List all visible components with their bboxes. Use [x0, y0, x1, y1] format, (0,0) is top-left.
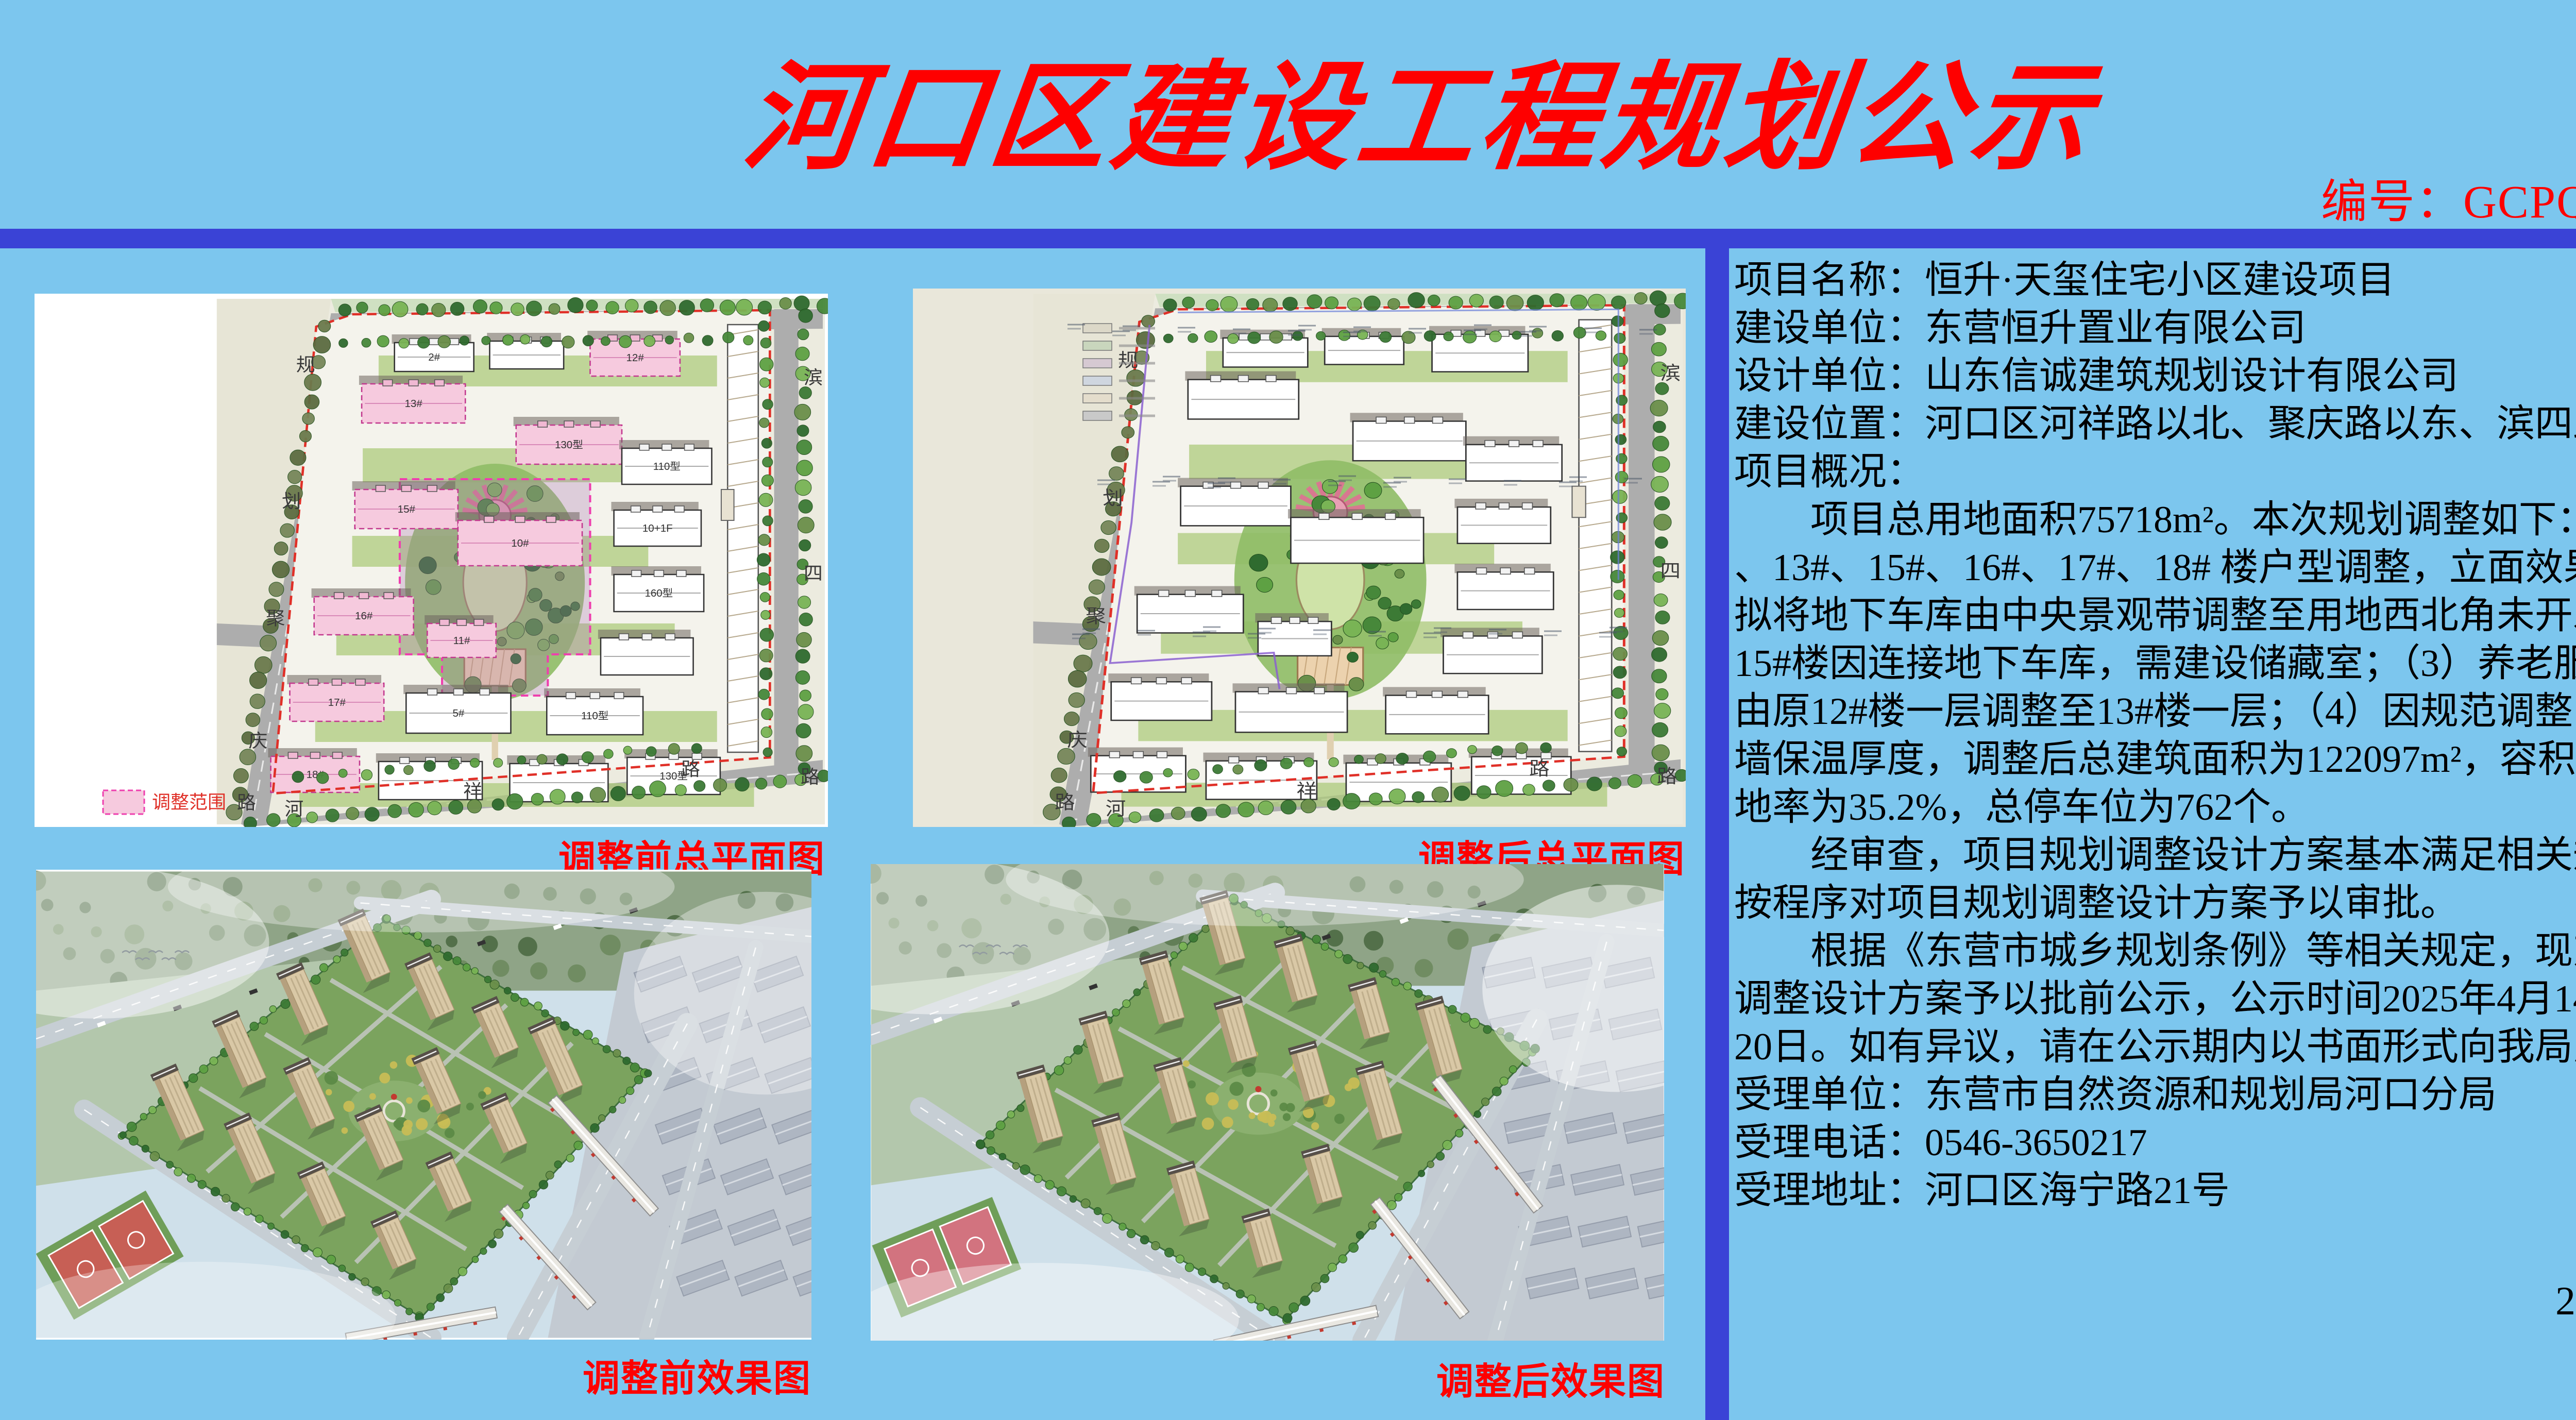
- horizontal-divider: [0, 229, 2576, 248]
- info-line: 调整设计方案予以批前公示，公示时间2025年4月14日至2025年4月: [1734, 975, 2576, 1023]
- building-label: 110型: [581, 710, 608, 722]
- caption-rendering-after: 调整后效果图: [1436, 1351, 1665, 1405]
- info-line: 15#楼因连接地下车库，需建设储藏室；（3）养老服务设施用房: [1734, 640, 2576, 688]
- road-label: 河: [284, 799, 303, 819]
- info-line: 按程序对项目规划调整设计方案予以审批。: [1734, 880, 2576, 927]
- road-label: 滨: [1660, 363, 1681, 384]
- road-label: 聚: [1086, 606, 1106, 627]
- rendering-after-image: [871, 864, 1664, 1341]
- building-label: 160型: [645, 587, 673, 599]
- rendering-before-drawing: [36, 870, 811, 1340]
- building-label: 10+1F: [642, 523, 673, 534]
- site-plan-after-image: 规划聚庆路滨四路河祥路: [913, 289, 1686, 827]
- planning-notice-poster: 河口区建设工程规划公示 编号：GCPQ2025015 12#2#13#130型1…: [0, 0, 2576, 1420]
- info-line: 20日。如有异议，请在公示期内以书面形式向我局反馈。: [1734, 1023, 2576, 1071]
- rendering-before-image: [36, 870, 811, 1340]
- info-line: 墙保温厚度，调整后总建筑面积为122097m²，容积率为1.47，绿: [1734, 736, 2576, 784]
- building-label: 13#: [405, 398, 423, 410]
- road-label: 河: [1106, 799, 1126, 819]
- info-line: 受理电话：0546-3650217: [1734, 1119, 2576, 1167]
- info-line: 根据《东营市城乡规划条例》等相关规定，现对该项目规划: [1734, 927, 2576, 975]
- building-label: 12#: [626, 352, 645, 364]
- road-label: 庆: [248, 731, 267, 751]
- project-info-text: 项目名称：恒升·天玺住宅小区建设项目建设单位：东营恒升置业有限公司设计单位：山东…: [1734, 257, 2576, 1215]
- building-label: 15#: [398, 504, 416, 515]
- road-label: 划: [282, 491, 301, 511]
- building-label: 17#: [328, 697, 346, 708]
- plan-graphics: [1033, 291, 1686, 827]
- road-label: 庆: [1067, 730, 1087, 751]
- info-line: 建设单位：东营恒升置业有限公司: [1734, 305, 2576, 352]
- building-label: 10#: [511, 538, 529, 549]
- road-label: 路: [681, 759, 700, 779]
- info-line: 受理单位：东营市自然资源和规划局河口分局: [1734, 1071, 2576, 1119]
- rendering-after-drawing: [871, 864, 1664, 1341]
- plan-legend: 调整范围: [103, 790, 226, 814]
- plan-graphics: 12#2#13#130型110型15#10#10+1F160型16#11#17#…: [217, 296, 828, 827]
- plan-legend-label: 调整范围: [152, 791, 226, 813]
- road-label: 规: [296, 354, 315, 375]
- vertical-divider: [1705, 229, 1729, 1420]
- building-label: 16#: [355, 611, 373, 622]
- caption-rendering-before: 调整前效果图: [583, 1348, 811, 1402]
- road-label: 路: [1055, 792, 1075, 813]
- road-label: 滨: [804, 367, 823, 387]
- building-label: 130型: [555, 439, 583, 451]
- notice-date: 2025年4月14日: [2555, 1269, 2576, 1326]
- road-label: 路: [801, 767, 820, 787]
- road-label: 祥: [1296, 781, 1316, 802]
- road-label: 路: [1657, 767, 1677, 787]
- road-label: 划: [1103, 488, 1123, 509]
- site-plan-before-image: 12#2#13#130型110型15#10#10+1F160型16#11#17#…: [35, 294, 828, 827]
- road-label: 规: [1118, 350, 1138, 371]
- info-line: 设计单位：山东信诚建筑规划设计有限公司: [1734, 352, 2576, 400]
- info-line: 项目总用地面积75718m²。本次规划调整如下：（1）1#、12#: [1734, 496, 2576, 544]
- road-label: 祥: [463, 781, 482, 801]
- page-title: 河口区建设工程规划公示: [738, 54, 2103, 183]
- info-line: 地率为35.2%，总停车位为762个。: [1734, 784, 2576, 832]
- info-line: 项目概况：: [1734, 448, 2576, 496]
- info-line: 由原12#楼一层调整至13#楼一层；（4）因规范调整，对应提高外: [1734, 688, 2576, 736]
- building-label: 2#: [428, 352, 440, 363]
- info-line: 项目名称：恒升·天玺住宅小区建设项目: [1734, 257, 2576, 305]
- info-line: 拟将地下车库由中央景观带调整至用地西北角未开发地块，13#、: [1734, 592, 2576, 640]
- site-plan-after-drawing: 规划聚庆路滨四路河祥路: [913, 289, 1686, 827]
- info-line: 、13#、15#、16#、17#、18# 楼户型调整，立面效果不变；（2）: [1734, 544, 2576, 592]
- info-line: 经审查，项目规划调整设计方案基本满足相关规范要求，拟: [1734, 832, 2576, 880]
- info-line: 建设位置：河口区河祥路以北、聚庆路以东、滨四路以西: [1734, 400, 2576, 448]
- road-label: 四: [804, 563, 823, 583]
- road-label: 聚: [266, 608, 285, 628]
- building-label: 11#: [453, 635, 470, 647]
- road-label: 路: [1529, 758, 1549, 779]
- info-line: 受理地址：河口区海宁路21号: [1734, 1167, 2576, 1215]
- site-plan-before-drawing: 12#2#13#130型110型15#10#10+1F160型16#11#17#…: [35, 294, 828, 827]
- building-label: 110型: [653, 461, 681, 472]
- serial-number: 编号：GCPQ2025015: [2321, 164, 2576, 231]
- road-label: 路: [237, 792, 256, 813]
- building-label: 5#: [452, 708, 465, 719]
- road-label: 四: [1660, 561, 1681, 582]
